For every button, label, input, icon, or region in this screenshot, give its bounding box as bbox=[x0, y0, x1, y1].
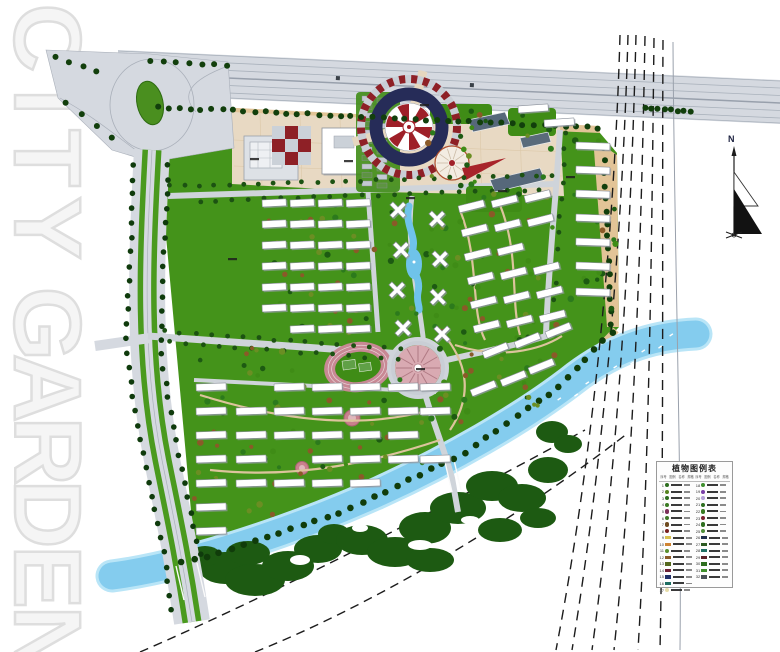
legend-plant-swatch bbox=[665, 490, 669, 494]
legend-plant-swatch bbox=[701, 569, 707, 572]
legend-name-mark bbox=[671, 497, 682, 499]
legend-header-cell: 图例 bbox=[669, 475, 675, 480]
legend-spec-mark bbox=[720, 511, 726, 513]
legend-spec-mark bbox=[684, 511, 690, 513]
legend-spec-mark bbox=[684, 484, 690, 486]
legend-plant-swatch bbox=[665, 562, 671, 565]
legend-header-cell: 图例 bbox=[705, 475, 711, 480]
legend-name-mark bbox=[707, 530, 718, 532]
legend-plant-swatch bbox=[701, 496, 705, 500]
legend-spec-mark bbox=[722, 563, 728, 565]
legend-row-number: 27 bbox=[695, 542, 700, 547]
legend-name-mark bbox=[707, 484, 718, 486]
legend-spec-mark bbox=[722, 537, 728, 539]
legend-name-mark bbox=[673, 543, 684, 545]
legend-spec-mark bbox=[686, 543, 692, 545]
legend-name-mark bbox=[673, 556, 684, 558]
legend-plant-swatch bbox=[665, 529, 669, 533]
legend-plant-swatch bbox=[665, 575, 671, 578]
legend-row-number: 10 bbox=[659, 542, 664, 547]
legend-spec-mark bbox=[722, 569, 728, 571]
legend-plant-swatch bbox=[701, 490, 705, 494]
legend-spec-mark bbox=[686, 556, 692, 558]
legend-plant-swatch bbox=[701, 549, 707, 552]
legend-row: 32 bbox=[695, 574, 730, 581]
legend-name-mark bbox=[673, 537, 684, 539]
legend-row-number: 15 bbox=[659, 574, 664, 579]
legend-name-mark bbox=[709, 543, 720, 545]
legend-spec-mark bbox=[686, 537, 692, 539]
legend-row-number: 6 bbox=[659, 516, 664, 521]
legend-name-mark bbox=[671, 510, 682, 512]
legend-plant-swatch bbox=[665, 556, 671, 559]
legend-spec-mark bbox=[686, 563, 692, 565]
legend-row-number: 28 bbox=[695, 548, 700, 553]
legend-spec-mark bbox=[684, 517, 690, 519]
legend-row-number: 4 bbox=[659, 502, 664, 507]
legend-spec-mark bbox=[684, 530, 690, 532]
legend-plant-swatch bbox=[665, 543, 671, 546]
legend-name-mark bbox=[707, 491, 718, 493]
legend-plant-swatch bbox=[665, 582, 671, 585]
legend-name-mark bbox=[673, 563, 684, 565]
legend-row-number: 29 bbox=[695, 555, 700, 560]
legend-spec-mark bbox=[686, 583, 692, 585]
legend-spec-mark bbox=[684, 491, 690, 493]
legend-plant-swatch bbox=[665, 503, 669, 507]
legend-row-number: 19 bbox=[695, 489, 700, 494]
legend-spec-mark bbox=[720, 484, 726, 486]
legend-name-mark bbox=[673, 582, 684, 584]
north-arrow-graphic bbox=[712, 134, 774, 252]
legend-row-number: 9 bbox=[659, 535, 664, 540]
legend-plant-swatch bbox=[665, 522, 669, 526]
legend-row-number: 16 bbox=[659, 581, 664, 586]
legend-column-right: 181920212223242526272829303132 bbox=[695, 482, 730, 593]
legend-name-mark bbox=[709, 576, 720, 578]
legend-header-cell: 序号 bbox=[696, 475, 702, 480]
legend-column-left: 1234567891011121314151617 bbox=[659, 482, 694, 593]
legend-name-mark bbox=[673, 576, 684, 578]
legend-header-cell: 名称 bbox=[678, 475, 684, 480]
legend-plant-swatch bbox=[701, 543, 707, 546]
legend-row-number: 20 bbox=[695, 496, 700, 501]
legend-plant-swatch bbox=[665, 569, 671, 572]
legend-name-mark bbox=[671, 530, 682, 532]
legend-plant-swatch bbox=[701, 575, 707, 578]
legend-plant-swatch bbox=[665, 588, 669, 592]
legend-spec-mark bbox=[720, 497, 726, 499]
legend-plant-swatch bbox=[665, 483, 669, 487]
legend-row-number: 3 bbox=[659, 496, 664, 501]
legend-spec-mark bbox=[722, 543, 728, 545]
legend-plant-swatch bbox=[665, 536, 671, 539]
legend-spec-mark bbox=[722, 576, 728, 578]
legend-name-mark bbox=[671, 589, 682, 591]
site-plan-canvas: CITYGARDEN bbox=[0, 0, 780, 652]
legend-name-mark bbox=[707, 497, 718, 499]
legend-plant-swatch bbox=[665, 549, 669, 553]
north-arrow: N bbox=[712, 134, 774, 252]
legend-spec-mark bbox=[720, 517, 726, 519]
legend-name-mark bbox=[671, 491, 682, 493]
legend-header-cell: 规格 bbox=[722, 475, 728, 480]
legend-row-number: 26 bbox=[695, 535, 700, 540]
legend-row-number: 2 bbox=[659, 489, 664, 494]
legend-plant-swatch bbox=[665, 496, 669, 500]
legend-plant-swatch bbox=[665, 509, 669, 513]
legend-row-number: 24 bbox=[695, 522, 700, 527]
legend-row: 17 bbox=[659, 587, 694, 594]
legend-title: 植物图例表 bbox=[659, 464, 730, 474]
legend-spec-mark bbox=[686, 576, 692, 578]
legend-row-number: 21 bbox=[695, 502, 700, 507]
legend-plant-swatch bbox=[701, 556, 707, 559]
legend-name-mark bbox=[673, 569, 684, 571]
legend-row-number: 30 bbox=[695, 561, 700, 566]
legend-row-number: 13 bbox=[659, 561, 664, 566]
legend-name-mark bbox=[709, 556, 720, 558]
legend-row-number: 23 bbox=[695, 516, 700, 521]
legend-row-number: 11 bbox=[659, 548, 664, 553]
legend-name-mark bbox=[707, 524, 718, 526]
legend-name-mark bbox=[671, 550, 682, 552]
legend-plant-swatch bbox=[701, 522, 705, 526]
legend-row-number: 25 bbox=[695, 529, 700, 534]
legend-name-mark bbox=[671, 484, 682, 486]
legend-spec-mark bbox=[720, 524, 726, 526]
legend-row-number: 32 bbox=[695, 574, 700, 579]
legend-plant-swatch bbox=[701, 516, 705, 520]
legend-spec-mark bbox=[720, 491, 726, 493]
legend-plant-swatch bbox=[701, 562, 707, 565]
legend-row-number: 31 bbox=[695, 568, 700, 573]
legend-name-mark bbox=[707, 510, 718, 512]
legend-plant-swatch bbox=[701, 483, 705, 487]
legend-name-mark bbox=[709, 569, 720, 571]
legend-name-mark bbox=[707, 517, 718, 519]
legend-row-number: 22 bbox=[695, 509, 700, 514]
legend-spec-mark bbox=[722, 556, 728, 558]
legend-plant-swatch bbox=[701, 509, 705, 513]
legend-row-number: 5 bbox=[659, 509, 664, 514]
legend-spec-mark bbox=[720, 530, 726, 532]
legend-header-row: 序号图例名称规格序号图例名称规格 bbox=[659, 474, 730, 482]
legend-header-cell: 序号 bbox=[660, 475, 666, 480]
legend-spec-mark bbox=[684, 497, 690, 499]
legend-plant-swatch bbox=[701, 529, 705, 533]
legend-row-number: 14 bbox=[659, 568, 664, 573]
legend-row-number: 8 bbox=[659, 529, 664, 534]
legend-name-mark bbox=[709, 563, 720, 565]
legend-plant-swatch bbox=[665, 516, 669, 520]
legend-row-number: 1 bbox=[659, 483, 664, 488]
legend-spec-mark bbox=[684, 550, 690, 552]
legend-spec-mark bbox=[684, 504, 690, 506]
legend-name-mark bbox=[709, 550, 720, 552]
legend-row-number: 12 bbox=[659, 555, 664, 560]
legend-spec-mark bbox=[686, 569, 692, 571]
legend-spec-mark bbox=[684, 524, 690, 526]
legend-name-mark bbox=[671, 524, 682, 526]
legend-spec-mark bbox=[720, 504, 726, 506]
legend-name-mark bbox=[671, 517, 682, 519]
legend-name-mark bbox=[709, 537, 720, 539]
legend-name-mark bbox=[671, 504, 682, 506]
legend-name-mark bbox=[707, 504, 718, 506]
plant-legend-panel: 植物图例表 序号图例名称规格序号图例名称规格 12345678910111213… bbox=[656, 461, 733, 588]
legend-spec-mark bbox=[722, 550, 728, 552]
legend-row-number: 17 bbox=[659, 588, 664, 593]
legend-plant-swatch bbox=[701, 503, 705, 507]
legend-header-cell: 名称 bbox=[713, 475, 719, 480]
legend-row-number: 7 bbox=[659, 522, 664, 527]
legend-plant-swatch bbox=[701, 536, 707, 539]
legend-row-number: 18 bbox=[695, 483, 700, 488]
checker-plaza bbox=[272, 126, 311, 165]
legend-header-cell: 规格 bbox=[687, 475, 693, 480]
legend-spec-mark bbox=[684, 589, 690, 591]
